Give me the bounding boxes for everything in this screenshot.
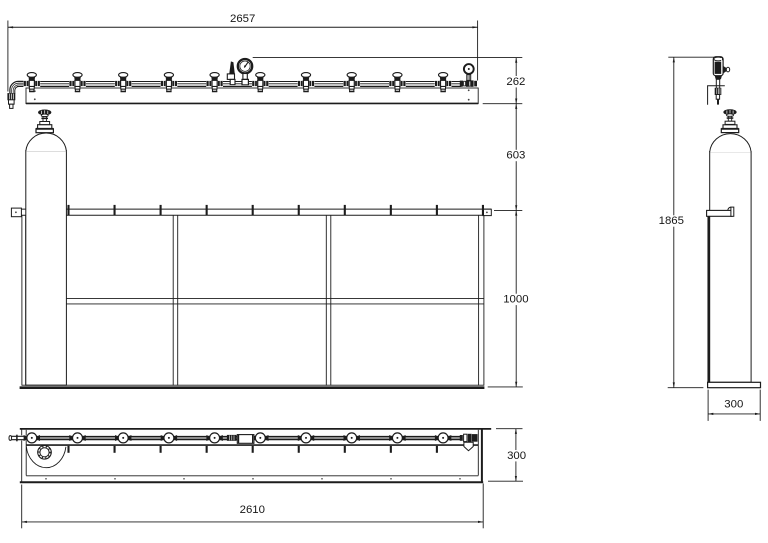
svg-text:262: 262 (506, 76, 525, 88)
svg-text:2610: 2610 (240, 504, 265, 516)
svg-text:300: 300 (507, 450, 526, 462)
svg-text:603: 603 (506, 150, 525, 162)
svg-text:2657: 2657 (230, 13, 255, 25)
svg-text:300: 300 (724, 399, 743, 411)
svg-text:1000: 1000 (503, 294, 528, 306)
svg-text:1865: 1865 (659, 215, 684, 227)
